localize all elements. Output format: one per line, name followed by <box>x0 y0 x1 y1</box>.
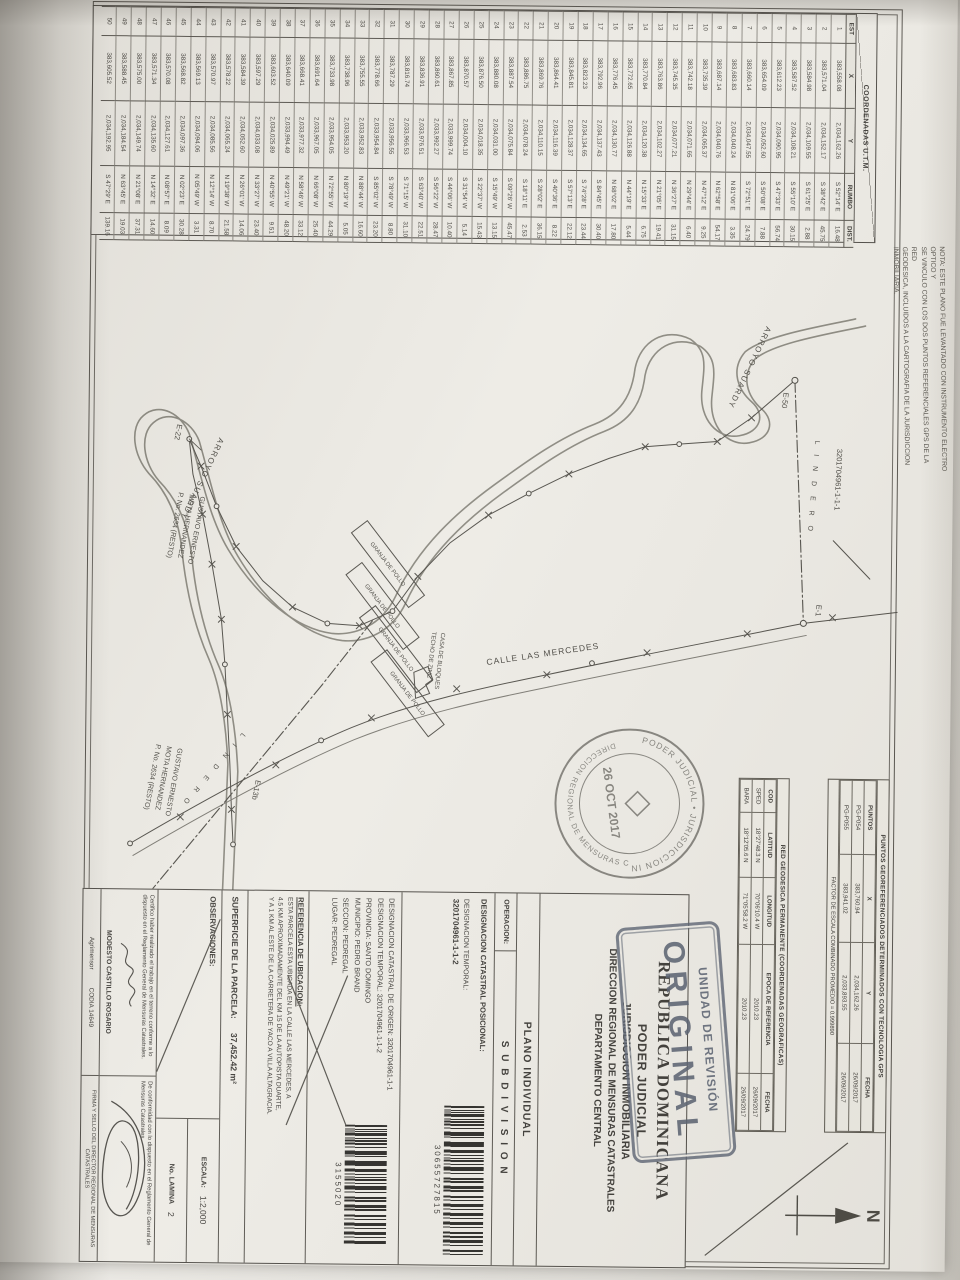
cell: 2,034,065.37 <box>696 107 712 172</box>
cell: 2,034,040.76 <box>711 107 727 172</box>
cell: 383,869.76 <box>533 40 549 105</box>
cell: 2,034,135.60 <box>145 101 161 166</box>
cell: 22 <box>518 11 533 40</box>
scale-cell: ESCALA: 1:2,000 <box>186 1119 220 1263</box>
coord-row: 17383,792.962,034,137.43S 84°45' E30.40 <box>591 12 608 245</box>
cell: 2,034,071.65 <box>681 107 697 172</box>
cell: 2,033,954.84 <box>368 103 384 168</box>
coord-row: 9383,687.142,034,040.76N 62°58' E54.17 <box>710 13 727 246</box>
cell: N 15°33' E <box>636 171 651 218</box>
cell: 32 <box>369 9 384 38</box>
coord-row: 48383,575.002,034,149.74N 21°08' E37.31 <box>129 7 146 240</box>
station-e22-label: E-22 <box>173 423 185 440</box>
cell: 28 <box>429 10 444 39</box>
cell: SPED <box>752 779 764 812</box>
cell: 2,034,149.74 <box>130 101 146 166</box>
cell: 26/09/2017 <box>849 1044 862 1132</box>
coord-row: 31383,787.292,033,956.55S 78°49' W8.80 <box>382 9 399 242</box>
calle-label: CALLE LAS MERCEDES <box>486 641 600 668</box>
owner-label-north: GUSTAVO ERNESTO MOTA HERNANDEZ P. No. 26… <box>164 492 205 566</box>
cell: 383,816.74 <box>399 39 415 104</box>
col-x: X <box>845 43 855 108</box>
coord-row: 12383,745.352,034,077.21N 36°27' E31.15 <box>665 12 682 245</box>
cell: 2,034,075.84 <box>502 105 518 170</box>
cell: 383,876.50 <box>473 39 489 104</box>
observations-row: OBSERVACIONES: ESCALA: 1:2,000 No. LAMIN… <box>154 890 222 1263</box>
cell: 2,034,004.10 <box>457 104 473 169</box>
surveyor-signature <box>114 939 141 1009</box>
cell: 383,612.23 <box>771 43 787 108</box>
cell: 15 <box>623 12 638 41</box>
cell: 2,034,110.15 <box>532 105 548 170</box>
cell: 2,033,966.53 <box>398 104 414 169</box>
cell: 18°12'05.6 N <box>739 813 752 878</box>
coord-row: 25383,876.502,034,018.35S 22°37' W15.43 <box>472 10 489 243</box>
cell: N 68°02' E <box>606 171 621 218</box>
coord-row: 49383,588.452,034,184.54N 63°45' E19.03 <box>114 7 131 240</box>
station-e50-label: E-50 <box>780 392 791 409</box>
plan-document: NOTA: ESTE PLANO FUE LEVANTADO CON INSTR… <box>0 0 958 1272</box>
cell: N 05°49' W <box>189 166 204 213</box>
cell: 2,034,108.21 <box>785 108 801 173</box>
cell: 9 <box>712 13 727 42</box>
coord-table-body: 1383,558.082,034,162.26S 52°14' E16.4823… <box>100 7 846 248</box>
cell: 2,033,977.32 <box>294 103 310 168</box>
granja-label: GRANJA DE POLLO <box>368 541 406 588</box>
coord-row: 28383,860.612,033,992.27S 56°22' W28.47 <box>427 10 444 243</box>
cell: N 63°45' E <box>115 166 130 213</box>
cell: 12 <box>667 12 682 41</box>
cell: 2,034,116.39 <box>547 105 563 170</box>
cell: 27 <box>444 10 459 39</box>
cell: S 18°11' E <box>517 170 532 217</box>
cell: 2,034,137.43 <box>591 106 607 171</box>
cell: 23 <box>503 11 518 40</box>
cell: N 21°05' E <box>651 171 666 218</box>
cell: 383,735.39 <box>696 42 712 107</box>
seal-emblem <box>625 792 649 816</box>
cell: 2,034,102.27 <box>651 106 667 171</box>
cell: S 57°13' E <box>561 170 576 217</box>
barcode <box>443 1105 485 1255</box>
margin-note-line: NOTA: ESTE PLANO FUE LEVANTADO CON INSTR… <box>928 246 949 476</box>
cell: N 80°19' W <box>338 168 353 215</box>
cell: 383,654.09 <box>756 42 772 107</box>
red-col: FECHA <box>761 1074 774 1131</box>
cell: 383,776.45 <box>607 41 623 106</box>
cell: N 08°57' E <box>159 166 174 213</box>
cell: S 09°26' W <box>502 170 517 217</box>
coord-row: 24383,880.082,034,031.00S 15°49' W13.15 <box>486 11 503 244</box>
cell: 30 <box>399 10 414 39</box>
cell: 383,568.82 <box>175 36 191 101</box>
cell: N 58°46' W <box>293 168 308 215</box>
cell: S 63°40' W <box>412 169 427 216</box>
cell: 26 <box>459 10 474 39</box>
coordinates-table-title: COORDENADAS U.T.M. <box>853 14 876 242</box>
cell: 383,763.86 <box>652 41 668 106</box>
cell: 2 <box>816 14 831 43</box>
surveyor-name: MODESTO CASTILLO ROSARIO <box>102 889 112 1075</box>
cell: 47 <box>146 7 161 36</box>
cell: 2,034,052.60 <box>234 102 250 167</box>
cell: 383,823.23 <box>577 41 593 106</box>
cell: 10 <box>697 13 712 42</box>
cell: 6 <box>757 13 772 42</box>
coord-row: 18383,823.232,034,134.65S 74°28' E23.44 <box>576 12 593 245</box>
cell: 383,787.29 <box>384 38 400 103</box>
cell: 46 <box>161 7 176 36</box>
coord-row: 14383,770.842,034,120.38N 15°33' E6.75 <box>635 12 652 245</box>
cell: N 02°23' E <box>174 166 189 213</box>
seal-date: 26 OCT 2017 <box>600 766 623 840</box>
coord-row: 29383,836.912,033,976.51S 63°40' W22.51 <box>412 10 429 243</box>
cell: S 28°02' E <box>531 170 546 217</box>
coord-row: 2383,571.042,034,152.17S 38°42' E45.75 <box>814 14 831 247</box>
cell: 2,034,047.55 <box>740 107 756 172</box>
cell: 2,034,031.00 <box>487 105 503 170</box>
cell: S 78°49' W <box>383 168 398 215</box>
coord-row: 45383,568.822,034,097.36N 02°23' E30.28 <box>174 7 191 240</box>
cell: 7 <box>742 13 757 42</box>
coord-row: 37383,668.412,033,977.32N 58°46' W33.12 <box>293 9 310 242</box>
red-col: LATITUD <box>763 813 776 878</box>
cell: 19 <box>563 11 578 40</box>
cell: 21 <box>533 11 548 40</box>
granja-label: GRANJA DE POLLO <box>388 671 426 718</box>
cell: 29 <box>414 10 429 39</box>
cell: 2,033,994.49 <box>279 102 295 167</box>
escala-label: ESCALA: <box>200 1157 207 1188</box>
cell: 39 <box>265 8 280 37</box>
cell: 2,034,120.38 <box>636 106 652 171</box>
coord-row: 23383,887.542,034,075.84S 09°26' W45.47 <box>501 11 518 244</box>
lamina-label: No. LAMINA <box>167 1164 174 1205</box>
cell: 43 <box>206 8 221 37</box>
cell: N 14°32' E <box>144 166 159 213</box>
col-est: EST <box>846 14 856 43</box>
cell: 26/09/2017 <box>737 1073 750 1130</box>
cell: 383,886.75 <box>518 40 534 105</box>
cell: 2,034,152.17 <box>815 108 831 173</box>
cell: 383,691.64 <box>309 38 325 103</box>
cell: 38 <box>280 8 295 37</box>
cell: N 36°27' E <box>665 171 680 218</box>
cell: 36 <box>310 9 325 38</box>
cell: 383,588.45 <box>116 36 132 101</box>
cell: N 29°44' E <box>680 172 695 219</box>
cell: 383,755.55 <box>354 38 370 103</box>
cell: 383,587.52 <box>786 43 802 108</box>
cell: S 22°37' W <box>472 169 487 216</box>
cell: 2,034,109.55 <box>800 108 816 173</box>
cell: 383,742.18 <box>681 42 697 107</box>
coord-row: 5383,612.232,034,090.95S 47°33' E56.74 <box>769 14 786 247</box>
cell: 383,575.00 <box>131 36 147 101</box>
cell: BARA <box>740 779 752 812</box>
barcode <box>344 1125 387 1245</box>
certification-row: Certifico haber realizado el trabajo en … <box>97 889 158 1262</box>
cell: 383,668.41 <box>294 38 310 103</box>
gps-col: PUNTOS <box>863 781 876 855</box>
superficie-label: SUPERFICIE DE LA PARCELA: <box>229 896 240 1018</box>
lamina-value: 2 <box>166 1212 176 1217</box>
cell: 1 <box>831 14 846 43</box>
cell: 383,760.94 <box>851 855 864 943</box>
cell: 35 <box>325 9 340 38</box>
cell: 383,880.08 <box>488 40 504 105</box>
cell: 2010.23 <box>749 944 762 1073</box>
cell: 3 <box>801 14 816 43</box>
cell: 383,770.84 <box>637 41 653 106</box>
cell: 49 <box>116 7 131 36</box>
cell: PG-P055 <box>839 780 852 854</box>
red-col: LONGITUD <box>763 878 776 945</box>
posicional-label: DESIGNACION CATASTRAL POSICIONAL: <box>478 899 489 1093</box>
coord-row: 46383,570.082,034,127.61N 08°57' E8.09 <box>159 7 176 240</box>
cell: 2,033,953.20 <box>338 103 354 168</box>
municipio-line: MUNICIPIO: PEDRO BRAND <box>349 898 363 1106</box>
coord-row: 10383,735.392,034,065.37N 47°12' E9.25 <box>695 13 712 246</box>
cell: 2,034,025.89 <box>264 102 280 167</box>
coord-row: 22383,886.752,034,078.24S 18°11' E2.53 <box>516 11 533 244</box>
gps-points-table: PUNTOS GEOREFERENCIADOS DETERMINADOS CON… <box>824 779 890 1134</box>
north-arrow-head <box>835 1208 861 1224</box>
cell: S 55°10' E <box>785 173 800 220</box>
coord-row: 43383,570.972,034,085.56N 12°14' W8.70 <box>204 8 221 241</box>
operation-row: OPERACION: S U B D I V I S I O N <box>491 893 517 1265</box>
cell: 2,034,094.06 <box>189 101 205 166</box>
coord-row: 11383,742.182,034,071.65N 29°44' E6.40 <box>680 13 697 246</box>
neighbor-parcel-label: 3201704961-1-1-1 <box>832 449 844 511</box>
cell: 383,836.91 <box>413 39 429 104</box>
cell: 2,034,130.77 <box>606 106 622 171</box>
cell: 383,778.66 <box>369 38 385 103</box>
cell: 2,034,090.95 <box>770 108 786 173</box>
cell: 8 <box>727 13 742 42</box>
cell: 2,034,162.26 <box>830 108 846 173</box>
cell: N 88°44' W <box>353 168 368 215</box>
cell: 11 <box>682 13 697 42</box>
granja-label: GRANJA DE POLLO <box>377 627 415 674</box>
cell: 2,033,954.05 <box>323 103 339 168</box>
cell: S 56°22' W <box>427 169 442 216</box>
gps-col: FECHA <box>861 1044 874 1132</box>
cell: 2010.23 <box>737 944 750 1073</box>
cell: 70°06'10.4 W <box>751 877 764 944</box>
cell: 383,683.83 <box>726 42 742 107</box>
cell: S 47°29' E <box>100 166 115 213</box>
cell: 17 <box>593 12 608 41</box>
coord-row: 13383,763.862,034,102.27N 21°05' E19.41 <box>650 12 667 245</box>
cell: S 61°25' E <box>799 173 814 220</box>
cell: 13 <box>652 12 667 41</box>
cell: N 12°14' W <box>204 167 219 214</box>
lindero-label-north: L I N D E R O <box>806 440 821 535</box>
cell: 50 <box>102 7 117 36</box>
cell: 2,033,952.83 <box>353 103 369 168</box>
cell: 44 <box>191 7 206 36</box>
cell: N 40°55' W <box>263 167 278 214</box>
gps-col: X <box>863 855 876 943</box>
director-strip: FIRMA Y SELLO DEL DIRECTOR REGIONAL DE M… <box>80 1076 99 1261</box>
cell: 383,687.14 <box>711 42 727 107</box>
geodetic-table-body: SPED18°27'48.3 N70°06'10.4 W2010.2326/09… <box>737 779 765 1130</box>
cell: S 74°28' E <box>576 171 591 218</box>
cert-left-text: Certifico haber realizado el trabajo en … <box>139 894 154 1058</box>
cell: N 47°12' E <box>695 172 710 219</box>
coord-row: 42383,578.222,034,065.24N 19°38' W21.58 <box>218 8 235 241</box>
coord-row: 8383,683.832,034,040.24N 81°06' E3.35 <box>725 13 742 246</box>
casa-label: CASA DE BLOQUES TECHO DE ZINC <box>424 631 445 689</box>
cell: 2,034,128.37 <box>562 105 578 170</box>
cell: 71°05'58.2 W <box>739 877 752 944</box>
cell: S 47°33' E <box>770 173 785 220</box>
red-col: COD <box>764 780 776 813</box>
cell: 383,584.98 <box>801 43 817 108</box>
location-reference-section: REFERENCIA DE UBICACION: ESTA PARCELA ES… <box>244 891 309 1264</box>
cell: 2,034,065.24 <box>219 102 235 167</box>
cell: 2,034,126.88 <box>621 106 637 171</box>
cell: 2,034,162.26 <box>849 942 862 1043</box>
cell: N 33°27' W <box>249 167 264 214</box>
operation-label: OPERACION: <box>495 893 517 951</box>
cell: 31 <box>384 9 399 38</box>
cell: 2,033,967.05 <box>309 103 325 168</box>
gps-table-body: PG-P054383,760.942,034,162.2626/09/2017P… <box>837 780 865 1131</box>
cell: N 49°21' W <box>278 167 293 214</box>
cell: 2,034,052.60 <box>755 107 771 172</box>
cell: N 62°58' E <box>710 172 725 219</box>
coord-row: 38383,640.092,033,994.49N 49°21' W48.20 <box>278 8 295 241</box>
col-y: Y <box>845 108 855 173</box>
cell: 2,033,956.55 <box>383 103 399 168</box>
observaciones-label: OBSERVACIONES: <box>156 890 222 1119</box>
cell: N 21°08' E <box>129 166 144 213</box>
cell: 383,603.52 <box>265 37 281 102</box>
cell: 18°27'48.3 N <box>751 813 764 878</box>
cell: 45 <box>176 7 191 36</box>
cell: S 44°06' W <box>442 169 457 216</box>
col-rumbo: RUMBO <box>844 173 854 220</box>
temporal-label: DESIGNACION TEMPORAL: <box>461 899 470 1093</box>
cell: S 40°36' E <box>546 170 561 217</box>
provincia-line: PROVINCIA: SANTO DOMINGO <box>361 898 375 1106</box>
coord-row: 32383,778.662,033,954.84S 85°02' W23.20 <box>367 9 384 242</box>
cell: 2,034,077.21 <box>666 106 682 171</box>
coord-row: 39383,603.522,034,025.89N 40°55' W9.51 <box>263 8 280 241</box>
designations-section: DESIGNACION CATASTRAL DE ORIGEN: 3201704… <box>305 891 402 1264</box>
cell: S 15°49' W <box>487 170 502 217</box>
owner-label-south: GUSTAVO ERNESTO MOTA HERNANDEZ P. No. 26… <box>142 743 183 817</box>
cell: 2,034,127.61 <box>160 101 176 166</box>
coord-row: 16383,776.452,034,130.77N 68°02' E17.80 <box>606 12 623 245</box>
coord-row: 36383,691.642,033,967.05N 66°08' W25.40 <box>308 9 325 242</box>
cell: 383,941.02 <box>839 854 852 942</box>
coord-row: 27383,867.852,033,999.74S 44°06' W10.40 <box>442 10 459 243</box>
surveyor-codia: CODIA 14649 <box>87 988 94 1028</box>
cell: 16 <box>608 12 623 41</box>
cell: 2,034,192.95 <box>101 101 116 166</box>
cell: 383,570.08 <box>160 36 176 101</box>
cell: 383,867.85 <box>443 39 459 104</box>
scanned-survey-plan: NOTA: ESTE PLANO FUE LEVANTADO CON INSTR… <box>0 0 960 1280</box>
cell: S 84°45' E <box>591 171 606 218</box>
cell: 383,792.96 <box>592 41 608 106</box>
coord-row: 41383,584.392,034,052.60N 26°01' W14.06 <box>233 8 250 241</box>
cell: 383,660.14 <box>741 42 757 107</box>
origen-line: DESIGNACION CATASTRAL DE ORIGEN: 3201704… <box>384 898 398 1106</box>
cell: 2,033,976.51 <box>413 104 429 169</box>
cell: S 31°54' W <box>457 169 472 216</box>
cell: 383,584.39 <box>235 37 251 102</box>
cell: 383,578.22 <box>220 37 236 102</box>
cell: 14 <box>637 12 652 41</box>
coord-row: 3383,584.982,034,109.55S 61°25' E2.88 <box>799 14 816 247</box>
operation-value: S U B D I V I S I O N <box>497 951 511 1265</box>
coord-row: 34383,738.962,033,953.20N 80°19' W5.05 <box>338 9 355 242</box>
station-e1-label: E-1 <box>813 604 823 616</box>
cell: 383,738.96 <box>339 38 355 103</box>
coord-row: 50383,605.522,034,192.95S 47°29' E139.16 <box>100 7 117 240</box>
cell: N 72°55' W <box>323 168 338 215</box>
coord-row: 30383,816.742,033,966.53S 71°15' W31.10 <box>397 10 414 243</box>
coord-row: 4383,587.522,034,108.21S 55°10' E30.15 <box>784 14 801 247</box>
coord-row: 19383,845.812,034,128.37S 57°13' E22.12 <box>561 11 578 244</box>
coord-row: 26383,870.572,034,004.10S 31°54' W5.14 <box>457 10 474 243</box>
cell: 383,558.08 <box>830 43 846 108</box>
escala-value: 1:2,000 <box>198 1196 208 1224</box>
cell: 2,033,999.74 <box>443 104 459 169</box>
cell: 2,034,097.36 <box>175 101 191 166</box>
cell: 383,571.04 <box>815 43 831 108</box>
cell: 383,845.81 <box>562 40 578 105</box>
area-row: SUPERFICIE DE LA PARCELA: 37,452.42 m² <box>218 890 248 1262</box>
cell: 383,745.35 <box>667 41 683 106</box>
arroyo-label-east: ARROYO SUARDY <box>726 325 773 410</box>
cell: 2,034,184.54 <box>115 101 131 166</box>
cell: N 44°19' E <box>621 171 636 218</box>
cell: 2,034,134.65 <box>577 106 593 171</box>
coord-row: 47383,571.342,034,135.60N 14°32' E14.60 <box>144 7 161 240</box>
cell: 2,034,018.35 <box>472 104 488 169</box>
coord-row: 15383,772.652,034,126.88N 44°19' E5.44 <box>620 12 637 245</box>
surveyor-role: Agrimensor <box>88 937 95 970</box>
cell: 2,034,040.24 <box>725 107 741 172</box>
red-col: EPOCA DE REFERENCIA <box>761 945 774 1074</box>
cell: 2,034,033.08 <box>249 102 265 167</box>
cell: S 38°42' E <box>814 173 829 220</box>
cell: 5 <box>772 14 787 43</box>
cell: 383,870.57 <box>458 39 474 104</box>
cell: N 26°01' W <box>234 167 249 214</box>
cell: 383,864.41 <box>547 40 563 105</box>
cell: 4 <box>786 14 801 43</box>
cell: 26/09/2017 <box>837 1043 850 1131</box>
cell: 383,772.65 <box>622 41 638 106</box>
cell: 2,033,893.55 <box>837 942 850 1043</box>
cell: 2,034,085.56 <box>204 102 220 167</box>
cell: 25 <box>474 10 489 39</box>
cell: 37 <box>295 9 310 38</box>
round-seal-stamp: PODER JUDICIAL • JURISDICCION INMOBILIAR… <box>549 723 711 885</box>
cell: 383,640.09 <box>279 37 295 102</box>
cell: N 19°38' W <box>219 167 234 214</box>
cell: 2,033,992.27 <box>428 104 444 169</box>
cell: 34 <box>340 9 355 38</box>
gps-col: Y <box>861 943 874 1044</box>
svg-text:TECHO DE ZINC: TECHO DE ZINC <box>425 631 436 679</box>
